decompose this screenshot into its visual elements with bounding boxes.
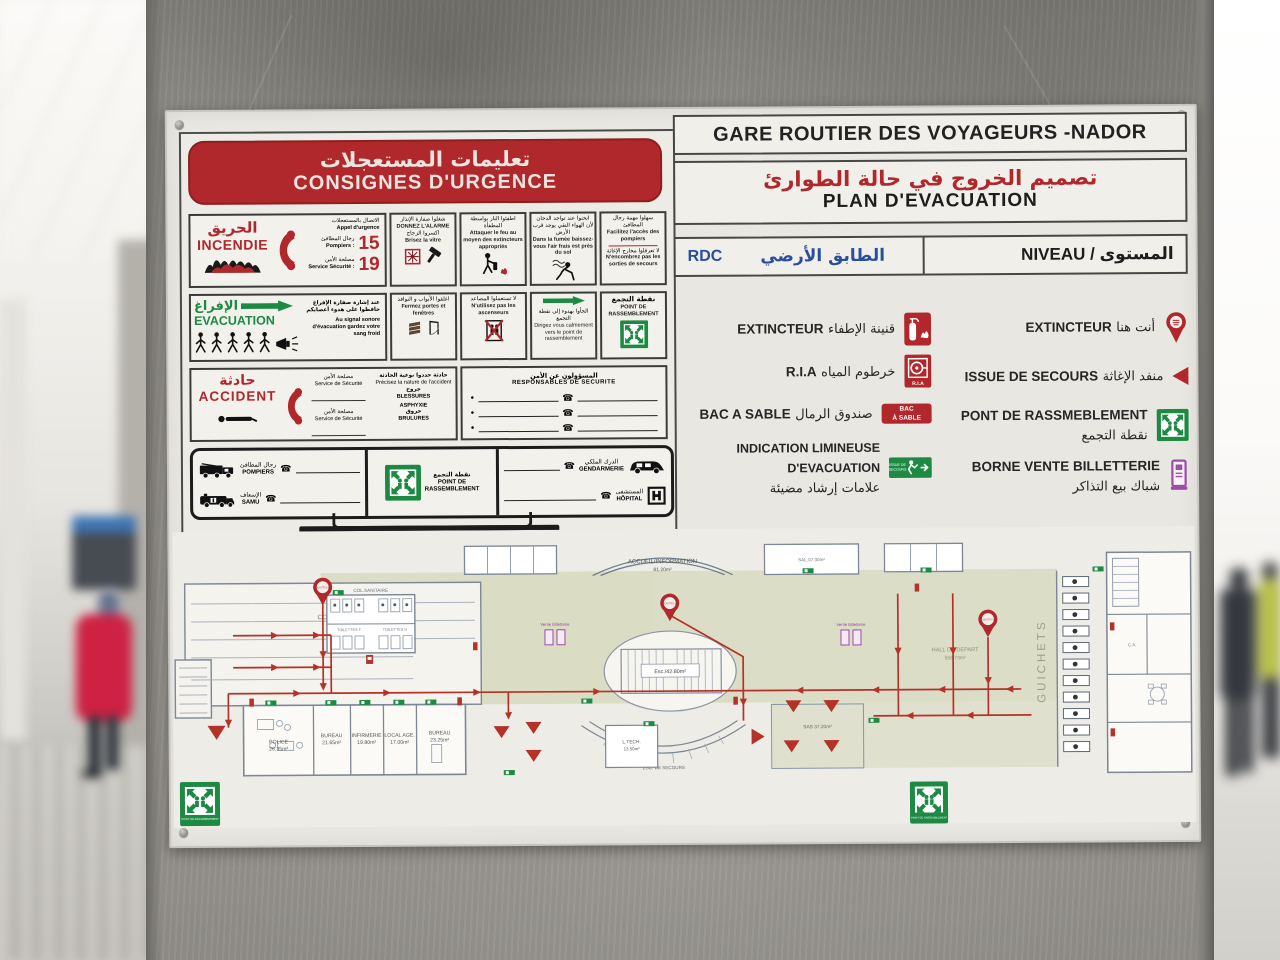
hospital-icon (647, 486, 666, 505)
svg-text:VOUS ÊTES ICI: VOUS ÊTES ICI (661, 602, 678, 605)
svg-text:17.00m²: 17.00m² (390, 740, 409, 746)
incendie-arabic: الحريق (193, 219, 271, 237)
floor-plan: CONSIGNE POLICE26.35m² BUREAU21.65m² INF… (171, 526, 1197, 840)
incendie-box: الحريق INCENDIE الاتصال بالمستعجلات Ap (188, 213, 386, 288)
banner-arabic: تعليمات المستعجلات (190, 146, 660, 173)
svg-text:21.65m²: 21.65m² (322, 740, 341, 746)
legend: EXTINCTEUR قنينة الإطفاء R.I.A خرطوم الم… (674, 302, 1189, 505)
svg-text:POINT DE RASSEMBLEMENT: POINT DE RASSEMBLEMENT (911, 815, 948, 819)
svg-text:GUICHETS: GUICHETS (1036, 619, 1049, 702)
svg-text:LOCAL AGE.: LOCAL AGE. (384, 733, 414, 739)
svg-text:13.50m²: 13.50m² (624, 746, 641, 751)
red-arrow-icon (1172, 367, 1188, 385)
banner-french: CONSIGNES D'URGENCE (190, 170, 660, 196)
no-elevator-icon (484, 319, 504, 342)
consignes-banner: تعليمات المستعجلات CONSIGNES D'URGENCE (188, 138, 662, 205)
level-bar: RDC الطابق الأرضي NIVEAU / المستوى (674, 234, 1188, 277)
issue-secours-sign-icon: ISSUE DE SECOURS (889, 455, 932, 479)
left-corridor-background (0, 0, 164, 960)
pedestrians-right (1214, 560, 1280, 840)
plan-assembly-point: POINT DE RASSEMBLEMENT (910, 781, 948, 823)
person-extinguisher-icon (478, 252, 508, 275)
wall-highlight (0, 300, 26, 740)
shutters-icon (407, 319, 425, 336)
crouching-person-icon (550, 259, 576, 281)
walking-figures (194, 331, 306, 353)
hammer-icon (424, 246, 442, 264)
row-incendie: الحريق INCENDIE الاتصال بالمستعجلات Ap (188, 211, 666, 288)
svg-text:TOILETTES F: TOILETTES F (337, 628, 362, 632)
svg-text:VOUS ÊTES ICI: VOUS ÊTES ICI (980, 618, 997, 621)
services-right: ☎ الدرك الملكي GENDARMERIE ☎ المستشفى HÔ… (499, 448, 671, 515)
door-icon (428, 319, 441, 336)
svg-text:COL.SANITAIRE: COL.SANITAIRE (353, 588, 388, 593)
consignes-urgence-panel: تعليمات المستعجلات CONSIGNES D'URGENCE ا… (179, 129, 677, 536)
svg-text:Vente Billetterie: Vente Billetterie (836, 622, 866, 627)
gendarmerie-car-icon (628, 457, 666, 474)
services-left: رجال المطافئ POMPIERS ☎ الإسعاف SAMU (193, 450, 365, 517)
svg-text:26.35m²: 26.35m² (269, 746, 288, 752)
svg-text:BUREAU: BUREAU (429, 730, 451, 736)
cell-fermez-portes: اغلقوا الأبواب و النوافذ Fermez portes e… (390, 292, 457, 360)
legend-issue-de-secours: ISSUE DE SECOURS منفد الإغاثة (931, 357, 1188, 397)
evacuation-sign-panel: تعليمات المستعجلات CONSIGNES D'URGENCE ا… (165, 104, 1201, 848)
svg-text:R.I.A: R.I.A (912, 381, 924, 387)
evac-note-fr: Au signal sonore d'évacuation gardez vot… (306, 317, 380, 338)
divider (609, 245, 658, 246)
evacuation-label: EVACUATION (194, 313, 306, 328)
pedestrian-red-coat (68, 586, 140, 786)
legend-vous-etes-ici: EXTINCTEUR أنت هنا (931, 308, 1188, 348)
svg-text:INFIRMERIE: INFIRMERIE (352, 733, 383, 739)
bac-a-sable-badge: BAC À SABLE (882, 404, 932, 424)
svg-text:SECOURS: SECOURS (889, 468, 907, 472)
svg-text:Vente Billetterie: Vente Billetterie (540, 622, 570, 627)
ria-hose-icon: R.I.A (904, 355, 931, 388)
legend-borne-billetterie: BORNE VENTE BILLETTERIE شباك بيع التذاكر (932, 456, 1189, 498)
ceiling (0, 0, 164, 260)
accident-box: حادثة ACCIDENT مصلحة الأمن Service de (189, 366, 457, 442)
incendie-french: INCENDIE (194, 237, 272, 253)
plan-assembly-point: POINT DE RASSEMBLEMENT (180, 782, 220, 826)
svg-text:19.80m²: 19.80m² (357, 740, 376, 746)
cell-attaquer-feu: اطفئوا النار بواسطة المطفأة Attaquer le … (459, 212, 526, 286)
assembly-point-icon (385, 465, 421, 501)
megaphone-icon (274, 335, 298, 352)
assembly-point-center: نقطة التجمع POINT DE RASSEMBLEMENT (365, 449, 499, 516)
cell-donnez-alarme: شغلوا صفارة الإنذار DONNEZ L'ALARME اكسر… (389, 212, 456, 286)
station-title: GARE ROUTIER DES VOYAGEURS -NADOR (713, 121, 1147, 147)
fire-truck-icon (198, 460, 236, 479)
location-pin-icon (1164, 310, 1188, 343)
cell-dirigez-vous: الجأوا بهدوء إلى نقطة التجمع Dirigez vou… (530, 292, 597, 360)
svg-text:Esc./42.80m²: Esc./42.80m² (654, 669, 686, 675)
svg-text:SAS 37.20m²: SAS 37.20m² (803, 724, 832, 730)
legend-left-column: EXTINCTEUR قنينة الإطفاء R.I.A خرطوم الم… (674, 303, 932, 505)
svg-text:VOUS ÊTES ICI: VOUS ÊTES ICI (314, 586, 331, 589)
pedestrian-coat (76, 614, 132, 722)
svg-text:ISSUE DE: ISSUE DE (889, 463, 906, 467)
phone-handset-icon (280, 386, 302, 426)
station-title-bar: GARE ROUTIER DES VOYAGEURS -NADOR (673, 112, 1187, 155)
assembly-point-icon (1157, 407, 1189, 443)
floor-plan-drawing: CONSIGNE POLICE26.35m² BUREAU21.65m² INF… (171, 526, 1197, 840)
appel-urgence-fr: Appel d'urgence (295, 225, 379, 232)
flames-icon (200, 253, 266, 275)
legend-point-rassemblement: PONT DE RASSMEBLEMENT نقطة التجمع (932, 405, 1189, 447)
svg-text:L.TECH.: L.TECH. (622, 739, 640, 745)
pompiers-number: 15 (358, 234, 379, 253)
svg-text:C.A.: C.A. (1128, 642, 1136, 647)
evacuation-box: الإفراغ EVACUATION (189, 293, 387, 362)
legend-extincteur: EXTINCTEUR قنينة الإطفاء (674, 309, 931, 349)
evac-note-ar: عند إشارة صفارة الإفراغ حافظوا على هدوء … (306, 300, 380, 314)
svg-text:SAL.07.30m²: SAL.07.30m² (798, 557, 825, 562)
cell-point-rassemblement: نقطة التجمع POINT DE RASSEMBLEMENT (600, 291, 667, 359)
legend-bac-a-sable: BAC A SABLE صندوق الرمال BAC À SABLE (675, 395, 932, 435)
row-evacuation: الإفراغ EVACUATION (189, 291, 667, 362)
legend-ria: R.I.A خرطوم المياه R.I.A (674, 352, 931, 392)
green-arrow-icon (241, 299, 293, 312)
responsables-box: المسؤولون عن الأمن RESPONSABLES DE SECUR… (460, 365, 667, 440)
svg-text:81.20m²: 81.20m² (653, 567, 672, 573)
svg-text:POLICE: POLICE (269, 739, 289, 745)
cell-facilitez-acces: سهلوا مهمة رجال المطافئ Facilitez l'accè… (599, 211, 666, 285)
extinguisher-icon (904, 312, 931, 345)
level-code: RDC (688, 248, 723, 266)
svg-text:TOILETTES H: TOILETTES H (383, 628, 408, 632)
legend-indication-lumineuse: INDICATION LIMINEUSE D'EVACUATION علامات… (675, 437, 932, 499)
row-accident: حادثة ACCIDENT مصلحة الأمن Service de (189, 365, 667, 442)
svg-text:BUREAU: BUREAU (321, 733, 343, 739)
phone-handset-icon (271, 228, 295, 272)
ticket-kiosk-icon (1169, 459, 1189, 492)
evac-title-french: PLAN D'EVACUATION (675, 189, 1185, 214)
level-label-ar: المستوى (1099, 244, 1173, 264)
level-arabic: الطابق الأرضي (760, 246, 885, 267)
cell-fumee-baissez: انحنوا عند تواجد الدخان لأن الهواء النقي… (529, 212, 596, 286)
svg-text:POINT DE RASSEMBLEMENT: POINT DE RASSEMBLEMENT (181, 817, 219, 821)
svg-text:23.25m²: 23.25m² (430, 737, 449, 743)
securite-number: 19 (359, 255, 380, 274)
emergency-services-band: رجال المطافئ POMPIERS ☎ الإسعاف SAMU (190, 445, 674, 520)
hi-vis-vest (1258, 580, 1280, 680)
plan-evacuation-bar: تصميم الخروج في حالة الطوارئ PLAN D'EVAC… (673, 158, 1187, 225)
level-label-fr: NIVEAU / (1021, 244, 1095, 263)
green-arrow-icon (542, 296, 584, 306)
screw (175, 120, 184, 129)
assembly-point-icon (620, 320, 648, 348)
legend-right-column: EXTINCTEUR أنت هنا ISSUE DE SECOURS منفد… (931, 302, 1189, 504)
ambulance-icon (198, 491, 236, 508)
svg-text:ACCUEIL/INFORMATION: ACCUEIL/INFORMATION (628, 559, 697, 565)
svg-text:556.73m²: 556.73m² (945, 655, 966, 661)
blurred-display-sign (72, 516, 136, 590)
cell-pas-ascenseurs: لا تستعملوا المصاعد N'utilisez pas les a… (460, 292, 527, 360)
photo-scene: تعليمات المستعجلات CONSIGNES D'URGENCE ا… (0, 0, 1280, 960)
evac-title-arabic: تصميم الخروج في حالة الطوارئ (675, 165, 1185, 192)
broken-glass-icon (405, 248, 421, 264)
injured-person-icon (216, 412, 260, 424)
